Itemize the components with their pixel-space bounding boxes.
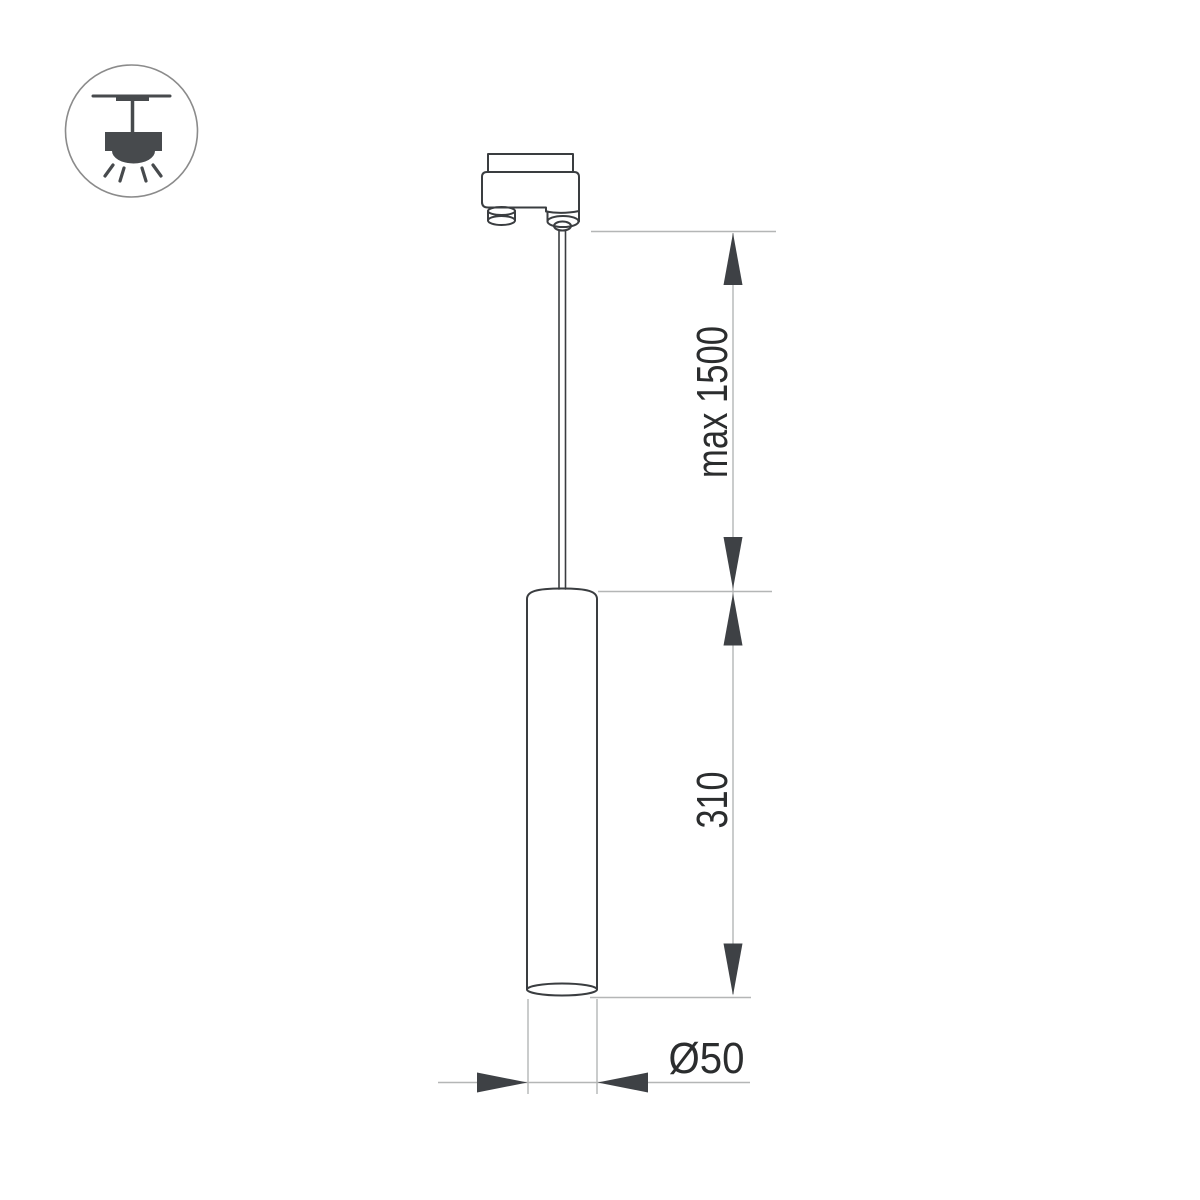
lamp-tube-outline: [527, 589, 597, 990]
arrow-up-icon: [724, 594, 743, 646]
technical-drawing-page: max 1500 310 Ø50: [0, 0, 1200, 1200]
luminaire-drawing: [482, 154, 597, 996]
icon-lamp-body: [105, 132, 162, 151]
ceiling-track-pendant-icon: [66, 65, 198, 197]
arrow-right-icon: [477, 1073, 528, 1093]
icon-light-ray: [120, 168, 124, 181]
arrow-down-icon: [724, 537, 743, 589]
arrow-down-icon: [724, 944, 743, 996]
lamp-tube-bottom-rim: [527, 984, 597, 996]
icon-lamp-dome: [112, 151, 155, 164]
track-connector: [488, 154, 573, 172]
body-height-label: 310: [688, 772, 737, 829]
arrow-left-icon: [598, 1073, 649, 1093]
icon-light-ray: [105, 165, 113, 176]
adapter-knob-bottom-rim: [488, 216, 515, 225]
drawing-svg: max 1500 310 Ø50: [0, 0, 1200, 1200]
icon-light-ray: [142, 168, 146, 181]
diameter-label: Ø50: [669, 1034, 745, 1083]
icon-light-ray: [153, 165, 161, 176]
arrow-up-icon: [724, 233, 743, 285]
suspension-length-label: max 1500: [688, 326, 737, 478]
